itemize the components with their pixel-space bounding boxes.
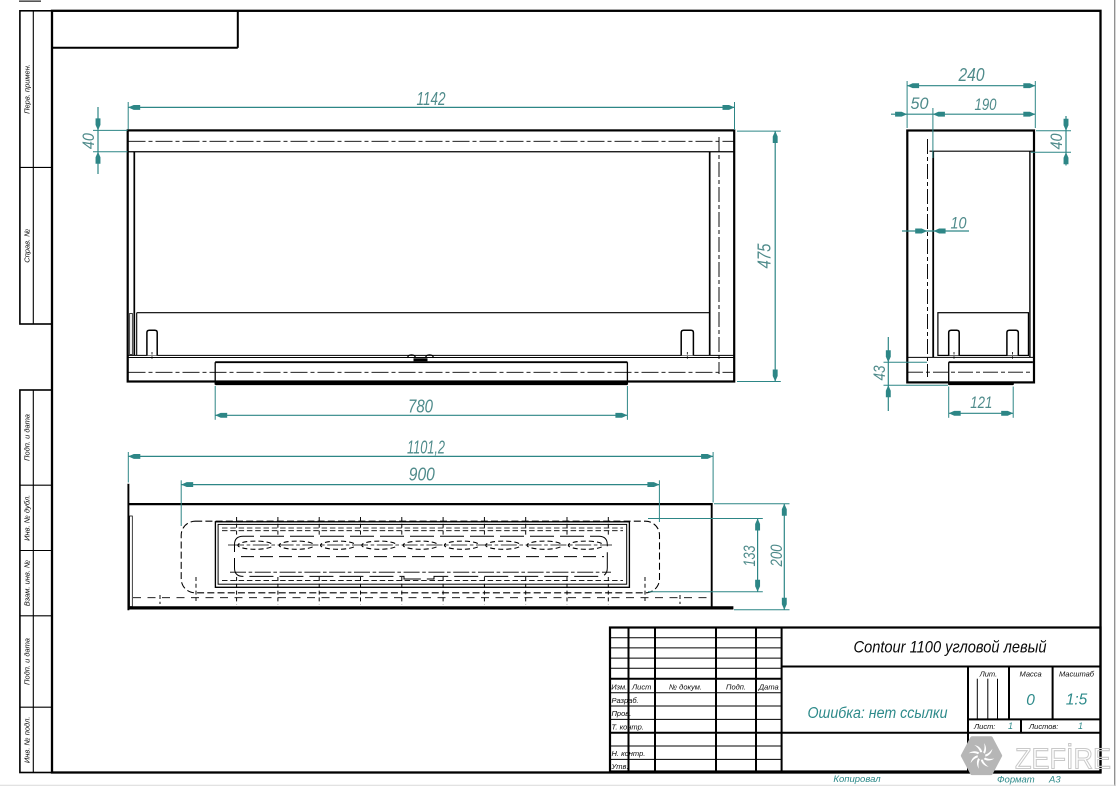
svg-text:Подп.: Подп. <box>726 682 746 691</box>
svg-text:Инв. № дубл.: Инв. № дубл. <box>23 495 32 541</box>
svg-text:Взам. инв. №: Взам. инв. № <box>23 560 32 606</box>
svg-text:Лит.: Лит. <box>979 669 998 678</box>
svg-text:Инв. № подл.: Инв. № подл. <box>23 717 32 764</box>
svg-text:Подп. и дата: Подп. и дата <box>23 638 32 685</box>
svg-text:Contour 1100 угловой левый: Contour 1100 угловой левый <box>854 638 1047 657</box>
svg-text:Формат: Формат <box>997 775 1035 786</box>
svg-text:Лист: Лист <box>631 682 651 691</box>
svg-text:40: 40 <box>79 133 98 149</box>
svg-text:Масса: Масса <box>1020 669 1042 678</box>
svg-text:А3: А3 <box>1048 775 1061 786</box>
svg-text:50: 50 <box>911 94 930 113</box>
svg-text:780: 780 <box>408 397 433 417</box>
svg-text:133: 133 <box>740 545 759 566</box>
svg-text:1101,2: 1101,2 <box>407 438 445 458</box>
svg-text:Пров.: Пров. <box>612 709 632 718</box>
svg-text:Н. контр.: Н. контр. <box>612 749 646 758</box>
svg-text:900: 900 <box>409 465 435 485</box>
svg-text:Листов:: Листов: <box>1028 722 1058 731</box>
svg-text:43: 43 <box>870 365 889 380</box>
svg-text:190: 190 <box>975 95 997 114</box>
svg-text:Масштаб: Масштаб <box>1059 669 1095 678</box>
svg-text:Лист:: Лист: <box>973 722 995 731</box>
svg-text:Подп. и дата: Подп. и дата <box>23 414 32 461</box>
svg-text:475: 475 <box>755 243 775 269</box>
svg-text:Изм.: Изм. <box>611 682 627 691</box>
svg-text:1142: 1142 <box>417 89 446 109</box>
svg-text:Перв. примен.: Перв. примен. <box>23 64 32 114</box>
svg-text:Справ. №: Справ. № <box>23 229 32 263</box>
svg-text:0: 0 <box>1026 692 1035 709</box>
svg-text:Дата: Дата <box>758 682 779 691</box>
svg-text:Копировал: Копировал <box>833 774 881 785</box>
svg-text:10: 10 <box>951 214 967 233</box>
svg-text:1:5: 1:5 <box>1066 692 1088 709</box>
svg-text:Ошибка: нет ссылки: Ошибка: нет ссылки <box>808 705 948 722</box>
svg-text:240: 240 <box>958 65 985 85</box>
svg-text:1: 1 <box>1078 721 1083 731</box>
svg-text:Утв.: Утв. <box>611 762 629 771</box>
svg-text:ZEFİRE: ZEFİRE <box>1015 744 1111 776</box>
svg-text:40: 40 <box>1047 133 1066 149</box>
svg-text:1: 1 <box>1008 721 1013 731</box>
svg-text:200: 200 <box>767 544 786 567</box>
svg-text:121: 121 <box>970 393 992 412</box>
svg-text:Разраб.: Разраб. <box>612 696 639 705</box>
svg-text:Т. контр.: Т. контр. <box>612 722 644 731</box>
svg-text:№ докум.: № докум. <box>669 682 702 691</box>
